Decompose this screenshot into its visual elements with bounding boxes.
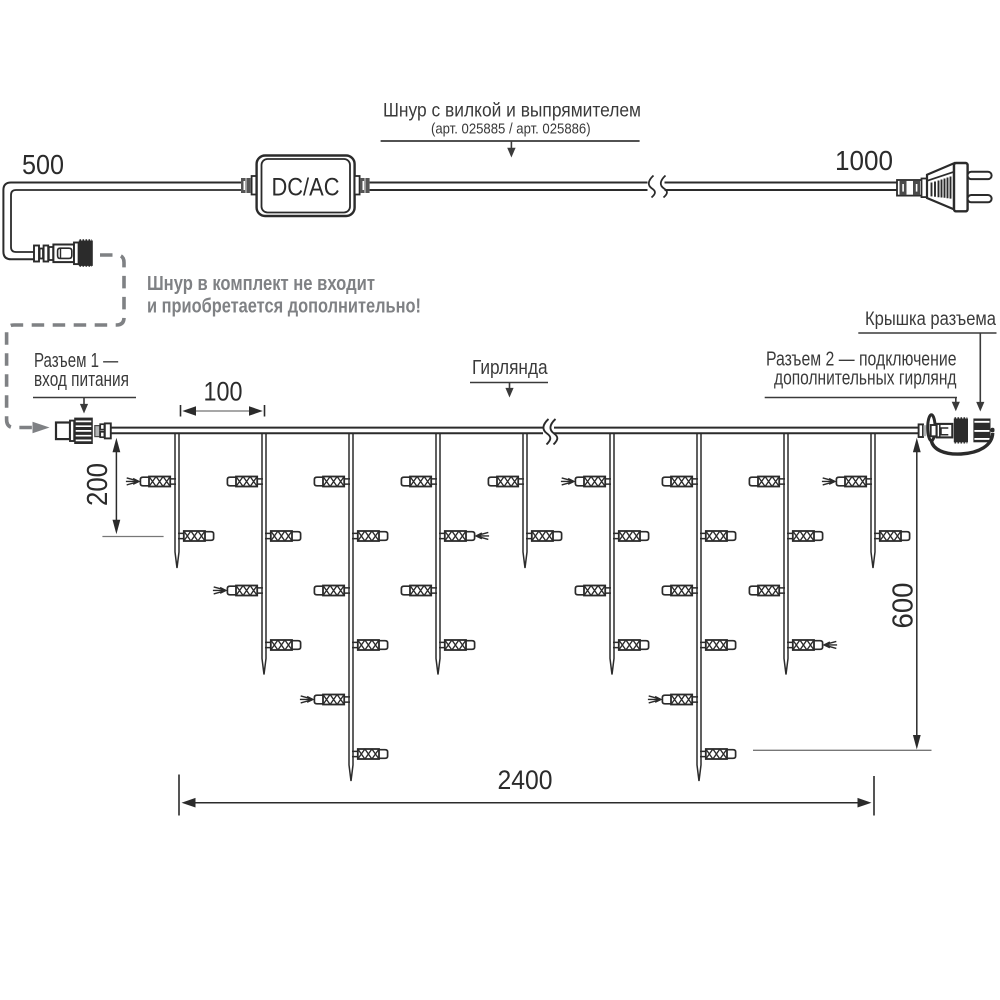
- svg-text:600: 600: [888, 583, 920, 629]
- svg-text:Гирлянда: Гирлянда: [472, 357, 548, 379]
- svg-text:вход питания: вход питания: [34, 369, 129, 391]
- svg-text:дополнительных гирлянд: дополнительных гирлянд: [774, 368, 957, 390]
- svg-text:100: 100: [204, 377, 243, 407]
- svg-text:(арт. 025885 / арт. 025886): (арт. 025885 / арт. 025886): [431, 120, 591, 137]
- svg-text:1000: 1000: [835, 145, 893, 176]
- svg-text:и приобретается дополнительно!: и приобретается дополнительно!: [147, 296, 421, 318]
- svg-text:200: 200: [82, 463, 114, 506]
- svg-text:2400: 2400: [498, 765, 553, 795]
- svg-text:DC/AC: DC/AC: [272, 174, 340, 202]
- svg-text:500: 500: [22, 149, 64, 180]
- svg-text:Крышка разъема: Крышка разъема: [865, 308, 996, 330]
- svg-text:Шнур с вилкой и выпрямителем: Шнур с вилкой и выпрямителем: [383, 100, 641, 122]
- svg-text:Шнур в комплект не входит: Шнур в комплект не входит: [147, 273, 375, 295]
